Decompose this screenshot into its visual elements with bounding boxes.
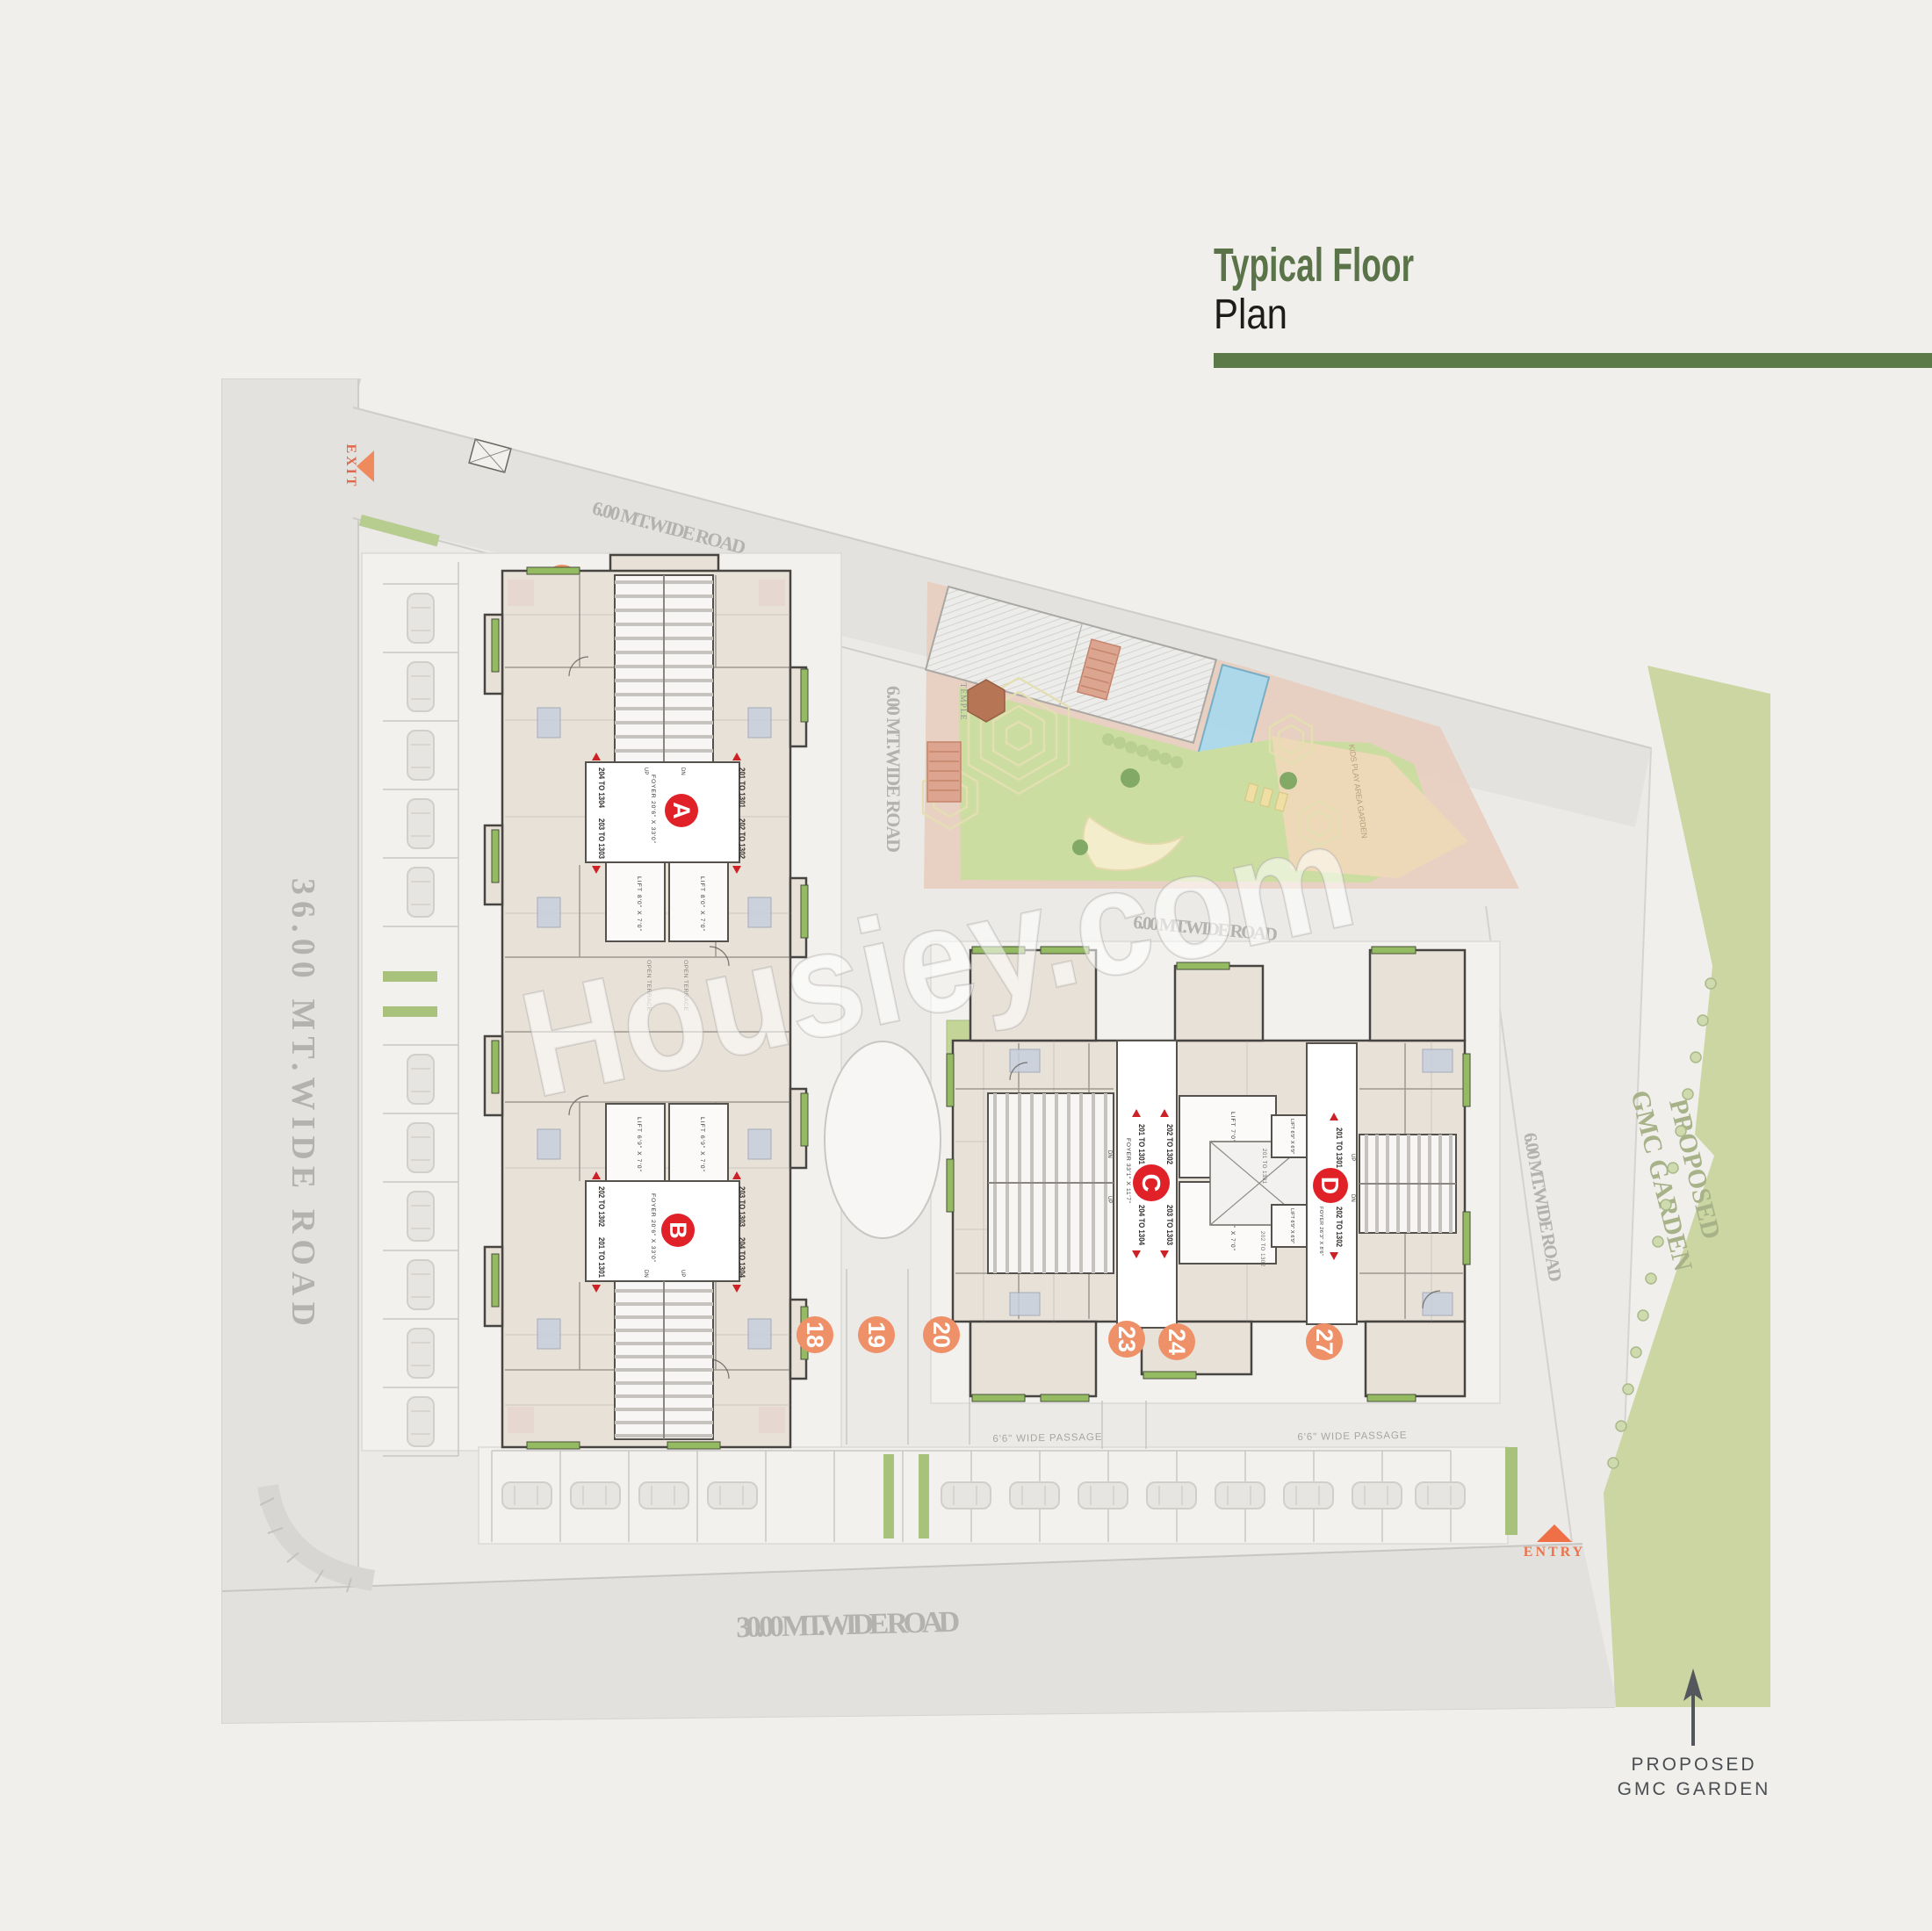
title-underline-bar xyxy=(1214,353,1932,368)
passage-label-2: 6'6" WIDE PASSAGE xyxy=(1297,1430,1407,1443)
road-left-label: 36.00 MT.WIDE ROAD xyxy=(285,878,321,1326)
tower-c-letter: C xyxy=(1136,1174,1164,1192)
unit-label: 203 TO 1303 xyxy=(738,1186,746,1227)
stairs-c-up: UP xyxy=(1107,1196,1112,1203)
unit-label: 203 TO 1303 xyxy=(597,818,606,859)
lift-d-1 xyxy=(1272,1115,1307,1157)
foyer-c-label: FOYER 33'1" X 11'7" xyxy=(1125,1138,1131,1204)
unit-label: 203 TO 1303 xyxy=(1165,1205,1174,1245)
plot-20: 20 xyxy=(928,1322,955,1348)
foyer-a-label: FOYER 20'6" X 33'0" xyxy=(650,775,656,844)
lift-b-1-label: LIFT 6'9" X 7'0" xyxy=(636,1117,642,1172)
lift-a-1 xyxy=(606,862,665,941)
unit-label: 202 TO 1302 xyxy=(738,818,746,859)
passage-label-1: 6'6" WIDE PASSAGE xyxy=(992,1432,1102,1445)
entry-label: ENTRY xyxy=(1524,1545,1585,1560)
unit-label: 201 TO 1301 xyxy=(597,1237,606,1278)
unit-label: 201 TO 1301 xyxy=(738,767,746,808)
lift-a-2-label: LIFT 8'0" X 7'0" xyxy=(699,876,705,932)
foyer-a xyxy=(586,762,739,862)
lift-a-1-label: LIFT 8'0" X 7'0" xyxy=(636,876,642,932)
stairs-b-dn: DN xyxy=(643,1270,648,1278)
lift-b-2-label: LIFT 6'9" X 7'0" xyxy=(699,1117,705,1172)
tower-b-letter: B xyxy=(665,1221,691,1239)
exit-label: EXIT xyxy=(343,443,358,488)
unit-label: 202 TO 1302 xyxy=(597,1186,606,1227)
lift-b-1 xyxy=(606,1104,665,1181)
lift-d-1-label: LIFT 6'9" X 6'9" xyxy=(1289,1119,1294,1154)
stairs-d-up: UP xyxy=(1350,1154,1355,1161)
page-title-line1: Typical Floor xyxy=(1214,239,1414,292)
tower-d-letter: D xyxy=(1316,1177,1344,1194)
tower-a-letter: A xyxy=(668,802,695,819)
title-block: Typical Floor Plan xyxy=(1214,239,1932,368)
page-title-line2: Plan xyxy=(1214,292,1287,338)
plot-23: 23 xyxy=(1114,1326,1140,1352)
garden-callout-line1: PROPOSED xyxy=(1631,1754,1756,1775)
road-inner-vertical-label: 6.00 MT.WIDE ROAD xyxy=(883,686,905,853)
plot-24: 24 xyxy=(1164,1329,1190,1355)
stairs-a-dn: DN xyxy=(680,767,685,775)
courtyard-oval xyxy=(825,1041,941,1238)
unit-label: 204 TO 1304 xyxy=(738,1237,746,1278)
open-sky-bottom-label: 202 TO 1302 xyxy=(1259,1231,1265,1267)
lift-d-2-label: LIFT 6'9" X 6'9" xyxy=(1289,1208,1294,1243)
stairs-a-up: UP xyxy=(643,767,648,775)
plot-27: 27 xyxy=(1311,1329,1337,1355)
unit-label: 202 TO 1302 xyxy=(1335,1207,1344,1247)
floor-plan-page: PROPOSED GMC GARDEN xyxy=(0,0,1932,1931)
unit-label: 204 TO 1304 xyxy=(1137,1205,1146,1245)
foyer-d-label: FOYER 26'3" X 8'6" xyxy=(1318,1207,1323,1256)
stairs-d-dn: DN xyxy=(1350,1194,1355,1202)
temple-label: TEMPLE xyxy=(958,683,967,721)
unit-label: 201 TO 1301 xyxy=(1137,1124,1146,1164)
plot-18: 18 xyxy=(802,1322,828,1348)
foyer-b-label: FOYER 20'6" X 33'0" xyxy=(650,1193,656,1263)
lift-b-2 xyxy=(669,1104,728,1181)
site-plan-canvas: PROPOSED GMC GARDEN xyxy=(0,0,1932,1931)
stairs-b-up: UP xyxy=(680,1270,685,1277)
open-sky-top-label: 201 TO 1301 xyxy=(1261,1149,1266,1185)
road-bottom-label: 30.00 MT.WIDE ROAD xyxy=(736,1606,961,1645)
garden-callout-line2: GMC GARDEN xyxy=(1618,1779,1771,1799)
lift-d-2 xyxy=(1272,1205,1307,1247)
stairs-c-dn: DN xyxy=(1107,1150,1112,1158)
unit-label: 204 TO 1304 xyxy=(597,767,606,808)
unit-label: 201 TO 1301 xyxy=(1335,1128,1344,1168)
unit-label: 202 TO 1302 xyxy=(1165,1124,1174,1164)
plot-19: 19 xyxy=(863,1322,890,1348)
